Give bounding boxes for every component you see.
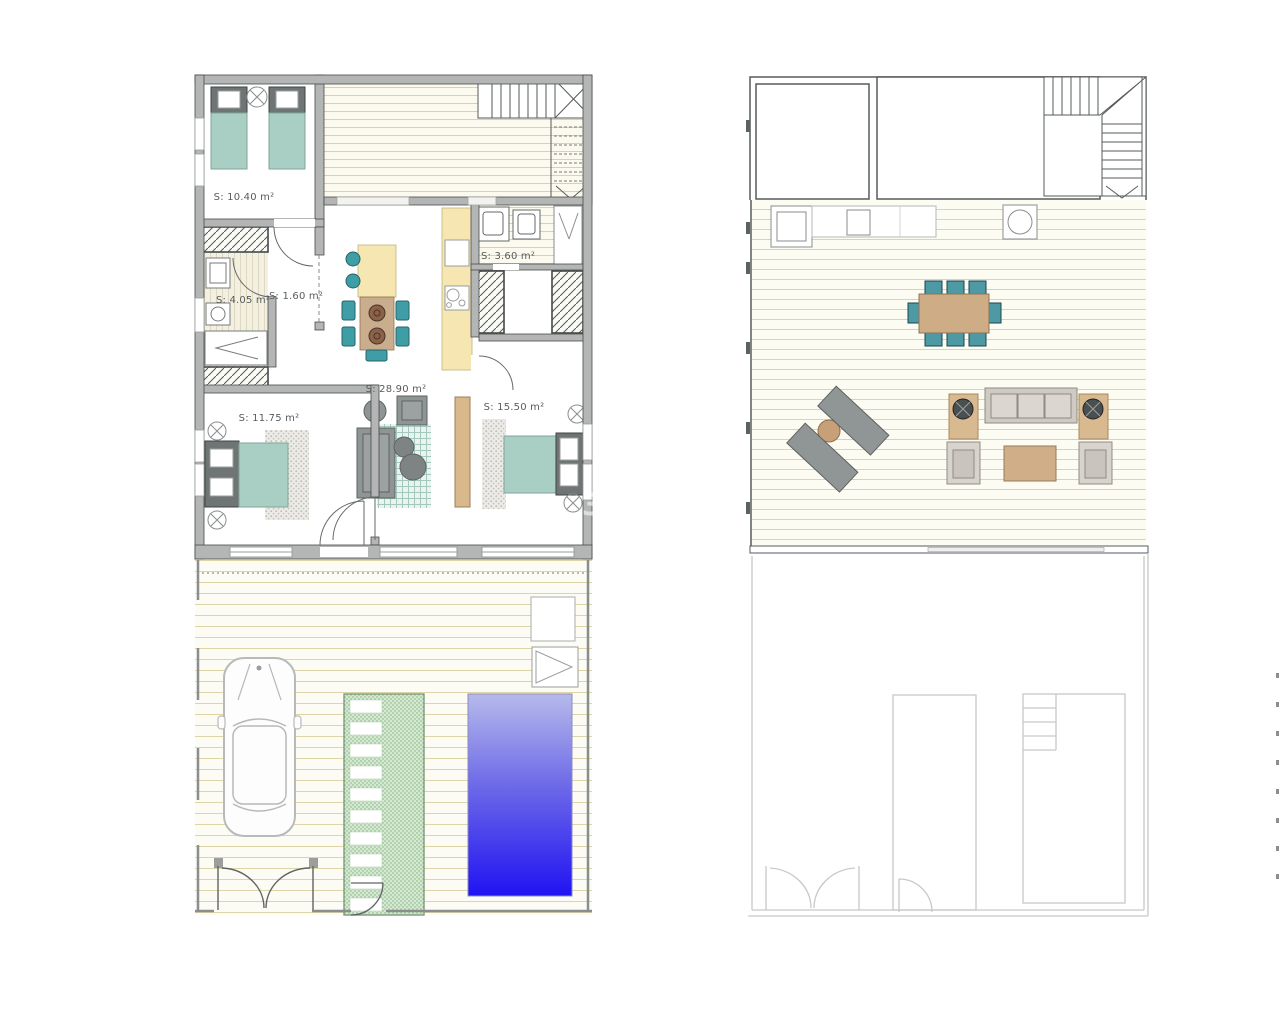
dining-table bbox=[919, 294, 989, 333]
area-label-bathroom: S: 4.05 m² bbox=[216, 295, 270, 306]
roof-terrace-deck bbox=[752, 200, 1146, 546]
ground-floor-plan: S: 10.40 m² S: 4.05 m² S: 1.60 m² S: 3.6… bbox=[195, 75, 602, 915]
area-label-bedroom-right: S: 15.50 m² bbox=[484, 402, 545, 413]
twin-bed-1 bbox=[211, 87, 247, 169]
right-edge-artifact bbox=[1276, 673, 1279, 879]
watermark-fragment: 3 bbox=[582, 488, 603, 523]
twin-bed-2 bbox=[269, 87, 305, 169]
area-label-bedroom-left: S: 11.75 m² bbox=[239, 413, 300, 424]
area-label-bedroom-top: S: 10.40 m² bbox=[214, 192, 275, 203]
shower-cabin bbox=[554, 206, 582, 266]
tv-cabinet bbox=[455, 397, 470, 507]
double-bed-left bbox=[205, 430, 309, 520]
washer-icons bbox=[477, 207, 540, 241]
wardrobe-icon bbox=[203, 227, 268, 252]
swimming-pool bbox=[468, 694, 572, 896]
storage-box bbox=[531, 597, 575, 641]
garden-path bbox=[344, 694, 424, 915]
upper-staircase bbox=[1044, 77, 1146, 198]
wardrobe-icon bbox=[552, 271, 583, 333]
footprint-outline bbox=[748, 553, 1148, 916]
outdoor-shower bbox=[532, 647, 578, 687]
rug bbox=[482, 419, 506, 509]
floor-plan-drawing: S: 10.40 m² S: 4.05 m² S: 1.60 m² S: 3.6… bbox=[0, 0, 1280, 1024]
terrace-edge-wall bbox=[750, 546, 1148, 553]
area-label-living: S: 28.90 m² bbox=[366, 384, 427, 395]
bottom-windows bbox=[230, 547, 574, 557]
area-label-hall: S: 1.60 m² bbox=[269, 291, 323, 302]
coffee-table bbox=[1004, 446, 1056, 481]
stool-icon bbox=[346, 252, 360, 266]
upper-floor-plan bbox=[746, 77, 1148, 916]
stool-icon bbox=[346, 274, 360, 288]
floorplan-page: S: 10.40 m² S: 4.05 m² S: 1.60 m² S: 3.6… bbox=[0, 0, 1280, 1024]
staircase-up bbox=[478, 80, 592, 118]
car-icon bbox=[218, 658, 301, 836]
kitchen-counter bbox=[442, 208, 472, 370]
area-label-utility: S: 3.60 m² bbox=[481, 251, 535, 262]
